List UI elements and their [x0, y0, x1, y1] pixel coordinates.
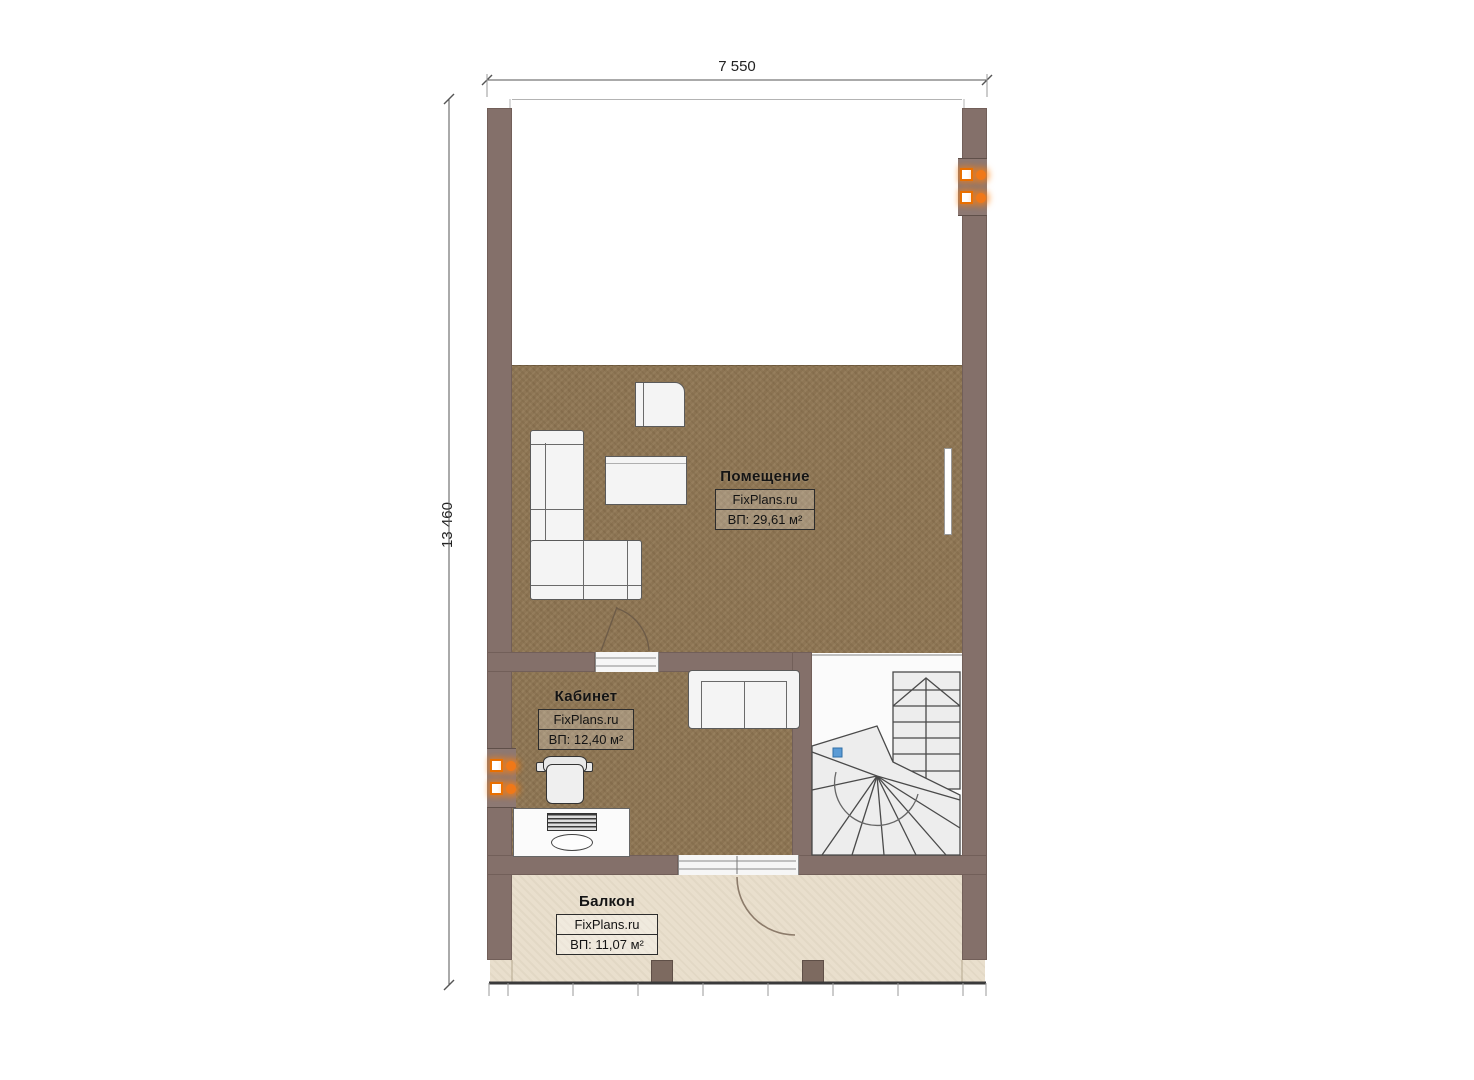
- room-label-kabinet: Кабинет FixPlans.ru ВП: 12,40 м²: [538, 688, 634, 750]
- wall-mid-left: [487, 652, 595, 672]
- wall-radiator-strip: [944, 448, 952, 535]
- sofa-front-line: [531, 585, 641, 586]
- radiator-glow-icon: [976, 193, 986, 203]
- radiator-right: [958, 158, 987, 216]
- radiator-valve-icon: [960, 191, 973, 204]
- basin-icon: [551, 834, 593, 851]
- radiator-icon: [960, 168, 986, 181]
- wall-left: [487, 108, 512, 960]
- radiator-icon: [960, 191, 986, 204]
- sofa-armrest-line: [531, 444, 583, 445]
- wall-right: [962, 108, 987, 960]
- wall-mid-right: [657, 652, 812, 672]
- radiator-valve-icon: [490, 782, 503, 795]
- sofa-cushion-line: [744, 681, 745, 728]
- radiator-icon: [490, 782, 516, 795]
- office-sofa: [688, 670, 800, 729]
- radiator-glow-icon: [506, 784, 516, 794]
- stove-body-icon: [546, 764, 584, 804]
- armchair: [635, 382, 685, 427]
- room-info-box: FixPlans.ru ВП: 29,61 м²: [715, 489, 815, 530]
- radiator-glow-icon: [506, 761, 516, 771]
- radiator-valve-icon: [960, 168, 973, 181]
- radiator-valve-icon: [490, 759, 503, 772]
- room-info-box: FixPlans.ru ВП: 11,07 м²: [556, 914, 658, 955]
- radiator-icon: [490, 759, 516, 772]
- coffee-table: [605, 456, 687, 505]
- room-area: ВП: 11,07 м²: [557, 934, 657, 954]
- radiator-left: [487, 748, 516, 808]
- room-area: ВП: 12,40 м²: [539, 729, 633, 749]
- grate-icon: [547, 813, 597, 831]
- balcony-post: [651, 960, 673, 984]
- sofa-cushion-line: [531, 509, 583, 510]
- dimension-top-label: 7 550: [487, 58, 987, 75]
- balcony-post: [802, 960, 824, 984]
- dimension-left-label: 13 460: [439, 465, 459, 585]
- room-brand: FixPlans.ru: [716, 490, 814, 509]
- floor-plan-canvas: 7 550 13 460: [0, 0, 1474, 1080]
- room-label-balkon: Балкон FixPlans.ru ВП: 11,07 м²: [556, 893, 658, 955]
- door-balcony-opening: [678, 855, 799, 875]
- stairwell-area: [812, 655, 962, 855]
- corner-sofa-chaise: [530, 540, 642, 600]
- wall-bottom-right: [797, 855, 987, 875]
- room-area: ВП: 29,61 м²: [716, 509, 814, 529]
- sofa-cushion-line: [583, 541, 584, 599]
- room-label-pomeshchenie: Помещение FixPlans.ru ВП: 29,61 м²: [715, 468, 815, 530]
- dimension-top: [482, 74, 992, 97]
- armchair-line: [643, 383, 644, 426]
- room-brand: FixPlans.ru: [557, 915, 657, 934]
- sink-counter: [513, 808, 630, 857]
- radiator-glow-icon: [976, 170, 986, 180]
- room-title: Кабинет: [538, 688, 634, 705]
- room-title: Балкон: [556, 893, 658, 910]
- door-office-opening: [595, 652, 659, 672]
- balcony-railing: [489, 983, 986, 996]
- sofa-armrest-line: [627, 541, 628, 599]
- table-edge-line: [606, 463, 686, 464]
- upper-void-room: [512, 99, 962, 366]
- room-title: Помещение: [715, 468, 815, 485]
- room-info-box: FixPlans.ru ВП: 12,40 м²: [538, 709, 634, 750]
- stove: [536, 756, 592, 806]
- room-brand: FixPlans.ru: [539, 710, 633, 729]
- sofa-armrest-line: [786, 681, 787, 728]
- wall-bottom-left: [487, 855, 678, 875]
- sofa-armrest-line: [701, 681, 702, 728]
